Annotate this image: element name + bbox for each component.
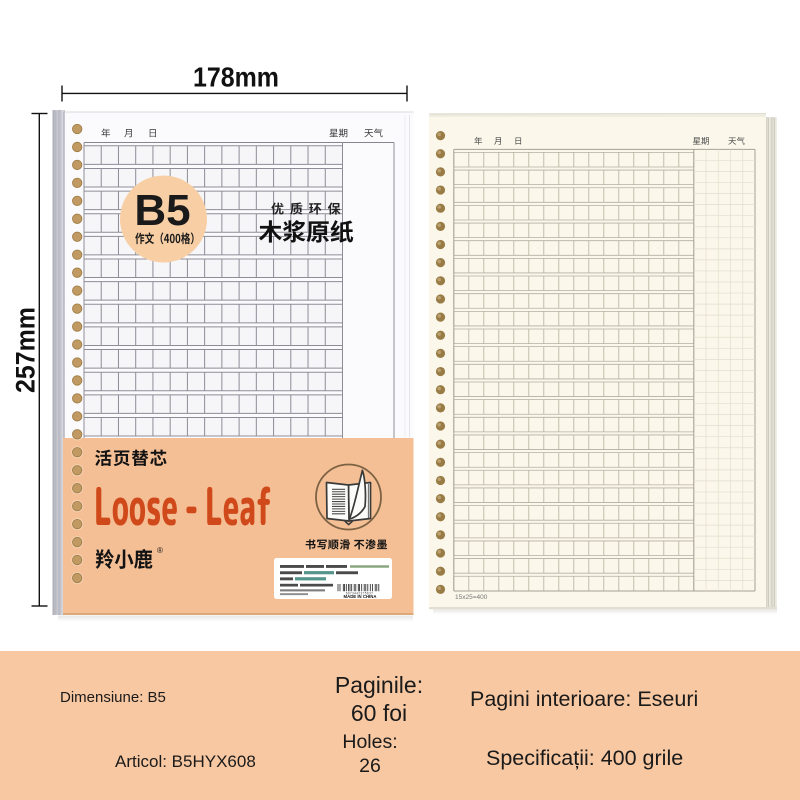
svg-text:15x25=400: 15x25=400 xyxy=(455,594,488,601)
svg-text:Specificații: 400 grile: Specificații: 400 grile xyxy=(486,746,683,770)
svg-text:Dimensiune: B5: Dimensiune: B5 xyxy=(60,689,166,706)
svg-text:Articol: B5HYX608: Articol: B5HYX608 xyxy=(115,752,256,771)
svg-text:Pagini interioare: Eseuri: Pagini interioare: Eseuri xyxy=(470,687,698,711)
svg-text:B5: B5 xyxy=(134,186,190,235)
svg-text:MADE IN CHINA: MADE IN CHINA xyxy=(344,594,377,599)
svg-text:178mm: 178mm xyxy=(193,62,279,93)
svg-text:257mm: 257mm xyxy=(11,307,41,393)
svg-text:Paginile:: Paginile: xyxy=(335,672,423,698)
svg-text:26: 26 xyxy=(359,755,381,777)
svg-text:Holes:: Holes: xyxy=(342,731,397,753)
svg-text:®: ® xyxy=(157,546,163,555)
svg-text:60 foi: 60 foi xyxy=(351,700,407,726)
